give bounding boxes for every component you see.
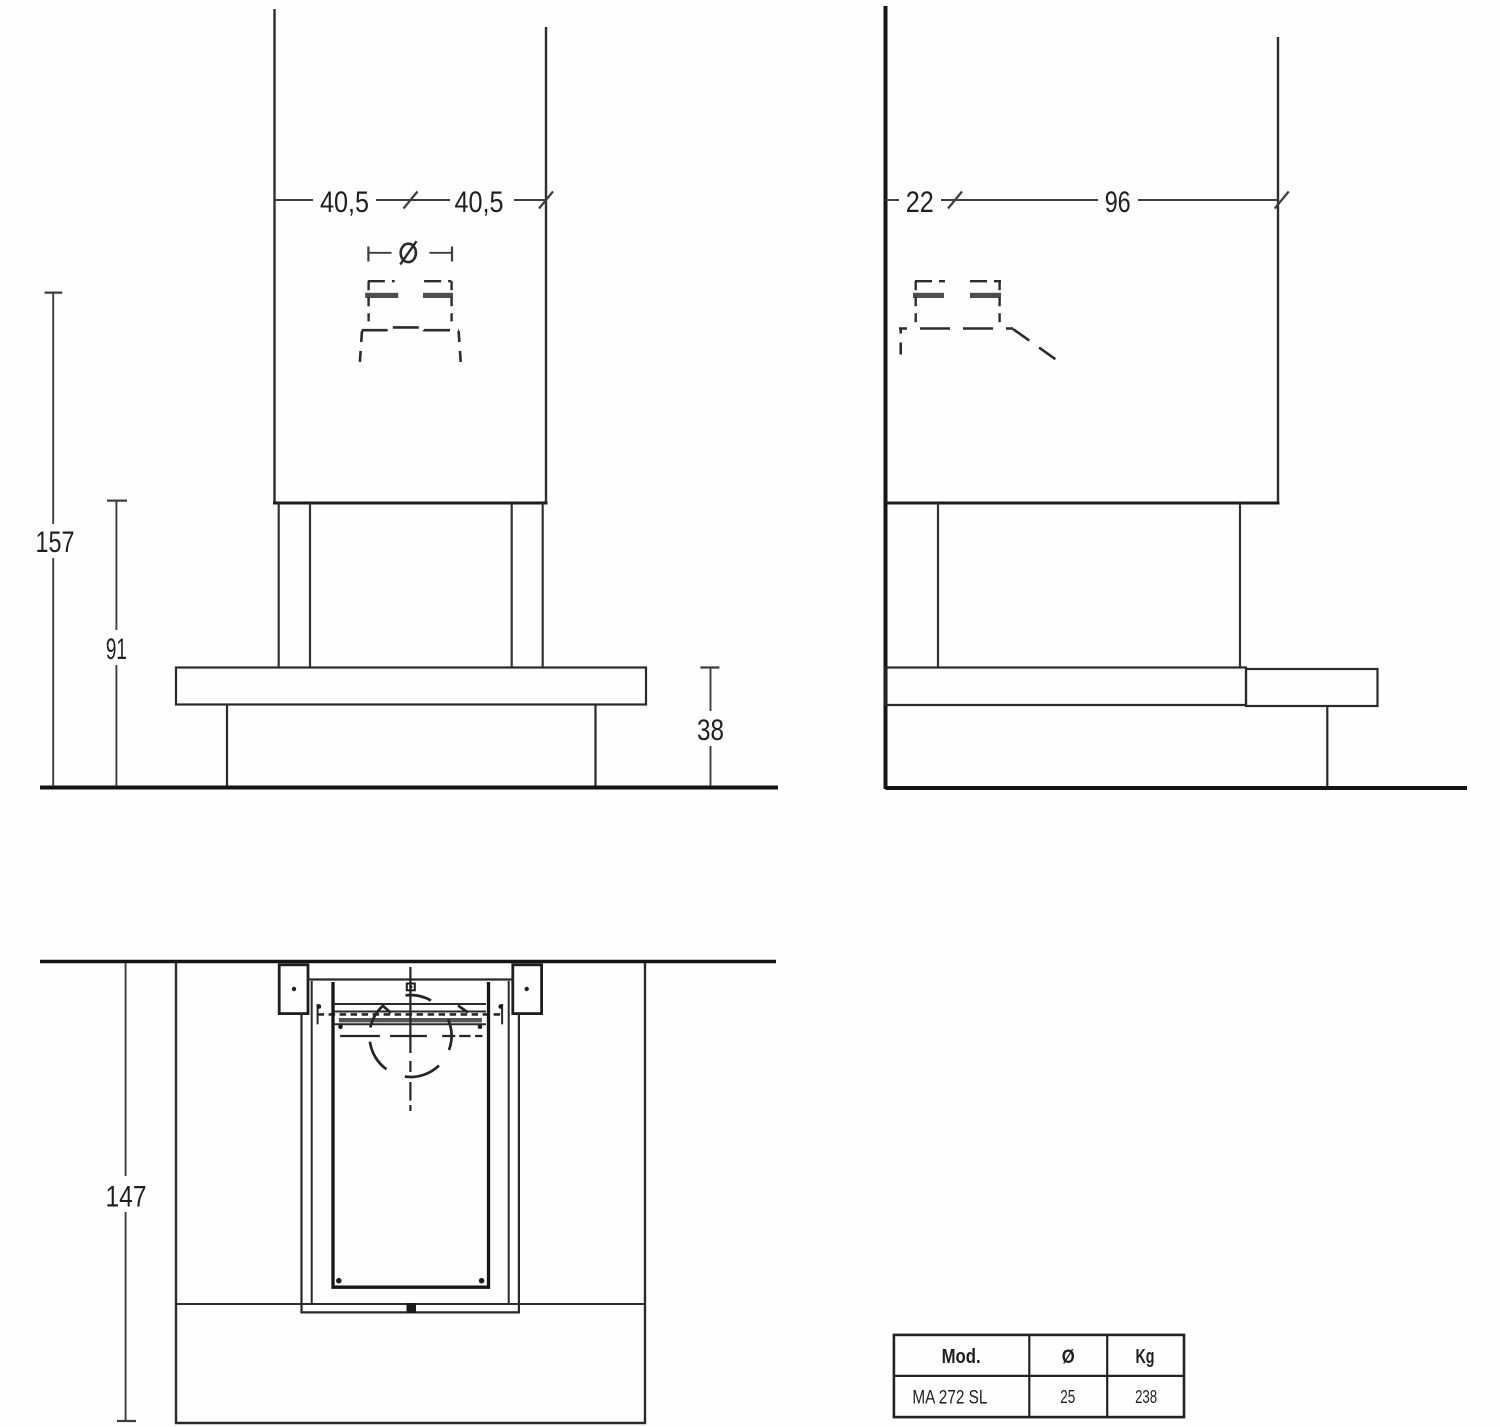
svg-text:96: 96: [1105, 186, 1131, 219]
svg-text:38: 38: [697, 714, 724, 747]
svg-text:MA 272 SL: MA 272 SL: [912, 1388, 987, 1409]
svg-text:25: 25: [1060, 1387, 1075, 1407]
svg-text:Kg: Kg: [1136, 1346, 1155, 1368]
svg-text:40,5: 40,5: [455, 186, 504, 219]
svg-text:157: 157: [36, 526, 75, 559]
svg-text:Ø: Ø: [1062, 1347, 1075, 1368]
svg-text:238: 238: [1135, 1387, 1157, 1407]
svg-text:Mod.: Mod.: [942, 1346, 981, 1368]
svg-text:147: 147: [106, 1181, 147, 1214]
svg-text:22: 22: [906, 186, 934, 219]
svg-text:40,5: 40,5: [320, 186, 369, 219]
svg-text:91: 91: [106, 633, 127, 666]
